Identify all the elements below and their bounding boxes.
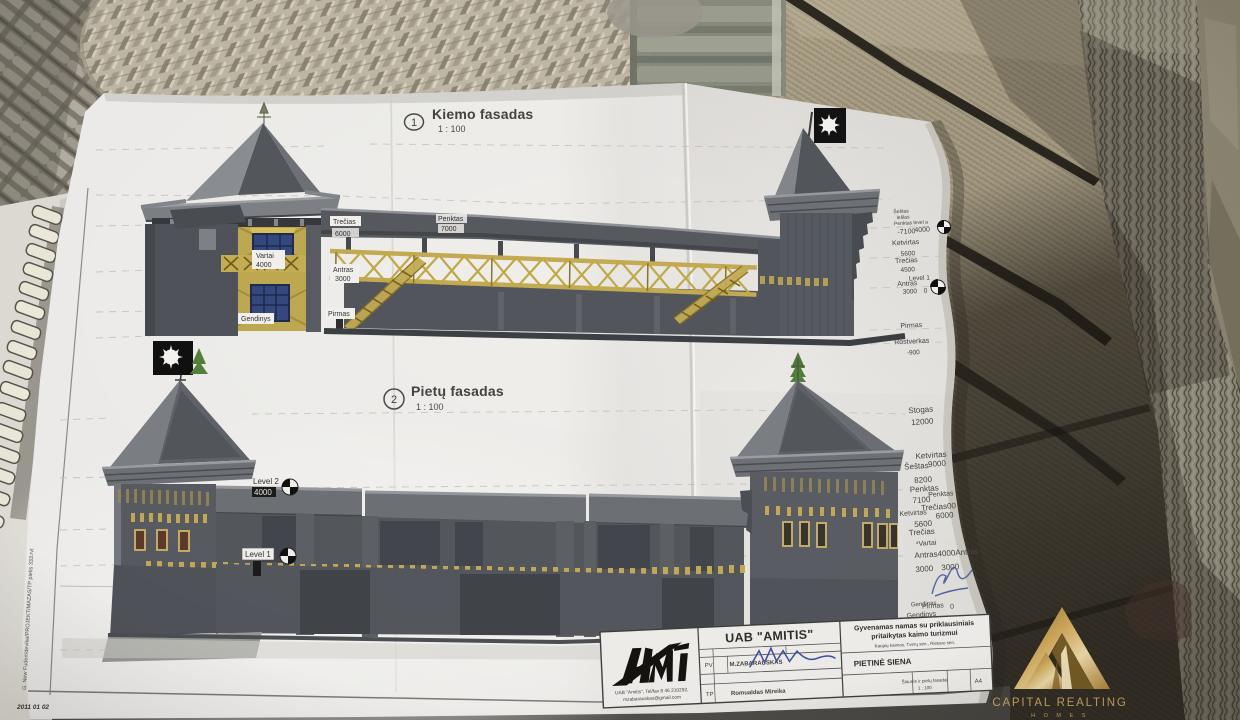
- svg-text:6000: 6000: [935, 510, 954, 520]
- svg-text:3000: 3000: [915, 564, 934, 574]
- svg-text:Trečias: Trečias: [909, 527, 936, 538]
- svg-text:2011 01 02: 2011 01 02: [16, 704, 49, 711]
- svg-text:4000: 4000: [254, 488, 272, 497]
- svg-text:0: 0: [950, 604, 954, 611]
- svg-text:-900: -900: [907, 349, 921, 357]
- svg-text:4500: 4500: [900, 266, 915, 274]
- svg-text:1 : 100: 1 : 100: [918, 685, 932, 691]
- svg-text:Level 2: Level 2: [253, 477, 279, 486]
- svg-text:6000: 6000: [335, 231, 351, 238]
- svg-text:H O M E S: H O M E S: [1031, 713, 1089, 719]
- svg-text:-7100: -7100: [897, 228, 915, 236]
- svg-text:CAPITAL REALTING: CAPITAL REALTING: [992, 697, 1127, 709]
- svg-text:12000: 12000: [911, 416, 934, 427]
- svg-text:A4: A4: [975, 679, 983, 685]
- svg-text:Trečias: Trečias: [895, 257, 919, 265]
- svg-text:Pietų fasadas: Pietų fasadas: [411, 383, 504, 399]
- svg-text:Antras: Antras: [897, 280, 918, 288]
- svg-text:Pirmas: Pirmas: [900, 322, 923, 330]
- svg-text:Stogas: Stogas: [908, 405, 933, 416]
- svg-text:Pirmas: Pirmas: [328, 311, 350, 318]
- svg-text:Level 1: Level 1: [245, 550, 271, 559]
- svg-text:1 : 100: 1 : 100: [416, 402, 444, 412]
- svg-text:7000: 7000: [441, 226, 457, 233]
- svg-text:Gendinys: Gendinys: [241, 316, 271, 323]
- svg-text:9000: 9000: [928, 459, 947, 469]
- svg-text:Penktas: Penktas: [438, 216, 464, 223]
- svg-text:4000: 4000: [256, 262, 272, 269]
- svg-text:Kiemo fasadas: Kiemo fasadas: [432, 106, 533, 122]
- svg-text:1: 1: [411, 117, 417, 129]
- svg-text:Šeštas: Šeštas: [904, 461, 929, 472]
- svg-text:4000: 4000: [914, 226, 930, 234]
- svg-text:Vartai: Vartai: [256, 253, 274, 260]
- svg-text:Trečias: Trečias: [333, 219, 356, 226]
- svg-text:3000: 3000: [902, 288, 917, 296]
- svg-text:3000: 3000: [335, 276, 351, 283]
- svg-text:Antras: Antras: [333, 267, 354, 274]
- svg-text:⁴Vartai: ⁴Vartai: [915, 540, 937, 548]
- svg-text:2: 2: [391, 394, 397, 406]
- svg-text:Ketvirtas: Ketvirtas: [892, 239, 920, 247]
- svg-text:1 : 100: 1 : 100: [438, 124, 466, 134]
- svg-text:TP: TP: [706, 692, 714, 698]
- svg-text:PV: PV: [705, 663, 713, 669]
